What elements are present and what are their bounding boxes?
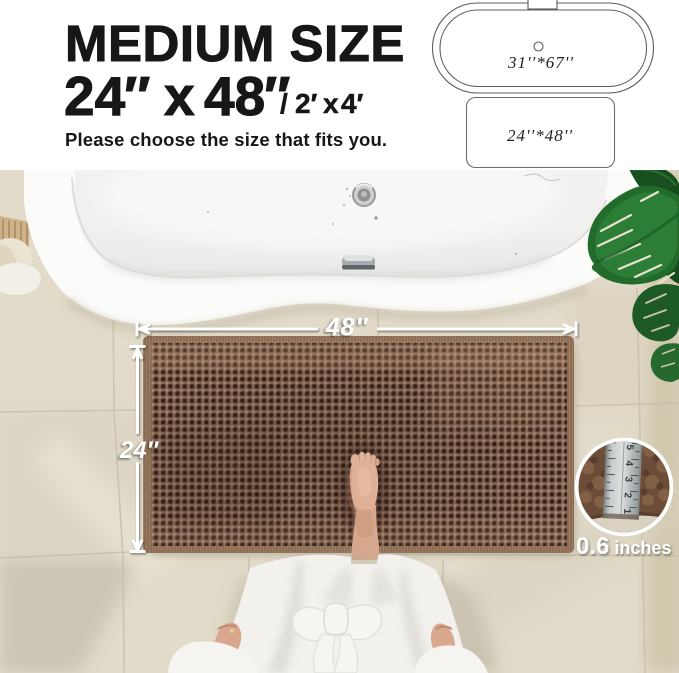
svg-text:24''*48'': 24''*48'' bbox=[507, 126, 573, 145]
svg-text:3: 3 bbox=[622, 476, 633, 482]
svg-text:4: 4 bbox=[623, 460, 634, 466]
svg-text:1: 1 bbox=[621, 508, 632, 514]
svg-text:Please choose the size that fi: Please choose the size that fits you. bbox=[65, 129, 387, 150]
svg-text:24″: 24″ bbox=[119, 437, 160, 464]
svg-text:2: 2 bbox=[622, 492, 633, 498]
svg-text:0.6inches: 0.6inches bbox=[576, 533, 671, 560]
svg-text:MEDIUM SIZE: MEDIUM SIZE bbox=[65, 15, 405, 72]
svg-text:31''*67'': 31''*67'' bbox=[507, 53, 574, 72]
svg-text:48″: 48″ bbox=[325, 314, 369, 342]
svg-text:5: 5 bbox=[624, 444, 635, 450]
svg-text:24″x48″: 24″x48″ bbox=[64, 65, 290, 127]
